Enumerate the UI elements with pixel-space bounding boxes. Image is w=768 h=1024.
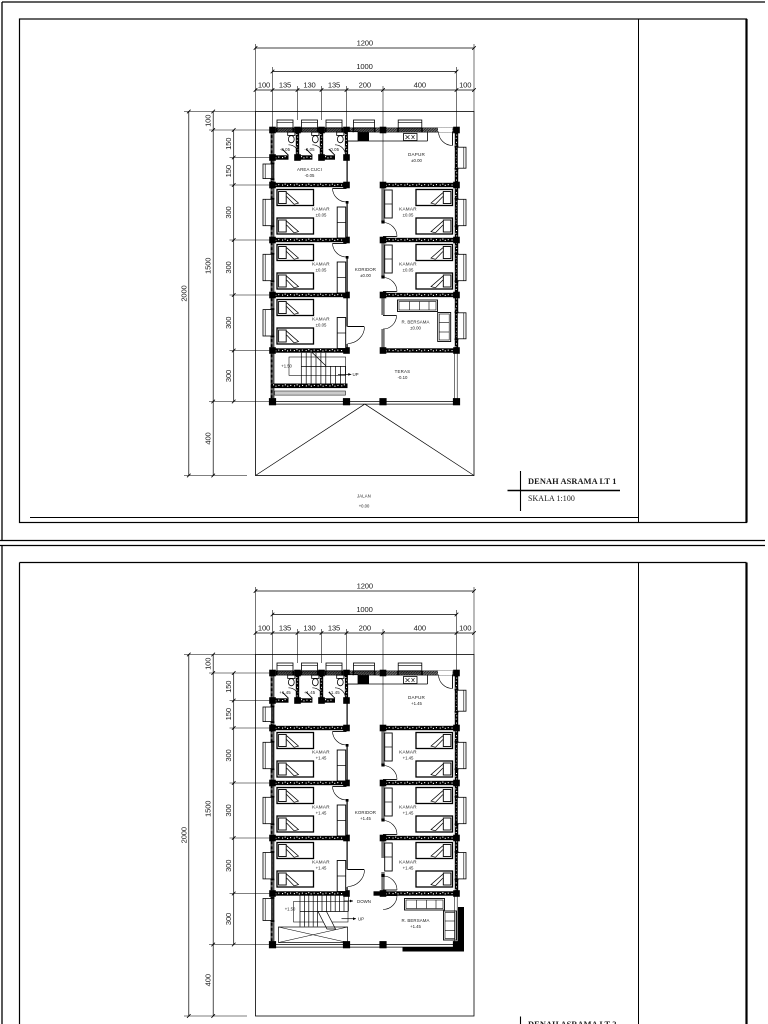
svg-text:JALAN: JALAN [357, 494, 371, 499]
svg-text:+1.45: +1.45 [316, 811, 327, 816]
svg-text:300: 300 [224, 804, 233, 816]
svg-text:±0.05: ±0.05 [316, 323, 327, 328]
svg-text:130: 130 [303, 81, 315, 90]
svg-text:1000: 1000 [356, 62, 372, 71]
svg-text:KAMAR: KAMAR [399, 805, 417, 810]
svg-text:135: 135 [328, 81, 340, 90]
svg-text:±0.00: ±0.00 [411, 158, 422, 163]
svg-text:±0.05: ±0.05 [316, 213, 327, 218]
svg-text:150: 150 [224, 681, 233, 693]
svg-text:+1.45: +1.45 [328, 690, 340, 695]
svg-text:UP: UP [358, 917, 364, 922]
svg-text:KAMAR: KAMAR [312, 207, 330, 212]
svg-text:1500: 1500 [204, 258, 213, 274]
svg-text:KAMAR: KAMAR [312, 750, 330, 755]
svg-text:300: 300 [224, 913, 233, 925]
svg-text:1200: 1200 [357, 39, 373, 48]
svg-text:+1.50: +1.50 [285, 907, 296, 912]
svg-text:+1.45: +1.45 [403, 811, 414, 816]
svg-text:300: 300 [224, 749, 233, 761]
svg-text:100: 100 [459, 81, 471, 90]
svg-text:DOWN: DOWN [357, 899, 371, 904]
svg-text:135: 135 [328, 624, 340, 633]
svg-text:100: 100 [258, 81, 270, 90]
svg-text:150: 150 [224, 138, 233, 150]
svg-text:+1.45: +1.45 [360, 816, 371, 821]
svg-text:KAMAR: KAMAR [312, 860, 330, 865]
svg-text:KAMAR: KAMAR [312, 805, 330, 810]
svg-text:400: 400 [204, 432, 213, 444]
svg-text:100: 100 [258, 624, 270, 633]
svg-text:-0.10: -0.10 [398, 375, 408, 380]
svg-text:KAMAR: KAMAR [399, 750, 417, 755]
svg-text:300: 300 [224, 317, 233, 329]
svg-text:300: 300 [224, 206, 233, 218]
svg-text:KAMAR: KAMAR [399, 207, 417, 212]
svg-text:400: 400 [414, 81, 426, 90]
svg-text:135: 135 [279, 81, 291, 90]
svg-text:2000: 2000 [179, 827, 188, 843]
svg-text:KORIDOR: KORIDOR [355, 810, 376, 815]
svg-text:300: 300 [224, 860, 233, 872]
svg-text:±0.05: ±0.05 [403, 213, 414, 218]
svg-text:+1.45: +1.45 [279, 690, 291, 695]
svg-text:KAMAR: KAMAR [312, 262, 330, 267]
svg-text:2000: 2000 [179, 285, 188, 301]
svg-text:+0.00: +0.00 [359, 504, 370, 509]
svg-text:200: 200 [359, 624, 371, 633]
svg-text:±0.00: ±0.00 [410, 326, 421, 331]
svg-text:+1.45: +1.45 [411, 701, 422, 706]
svg-text:R. BERSAMA: R. BERSAMA [401, 320, 429, 325]
svg-text:400: 400 [414, 624, 426, 633]
svg-text:±0.05: ±0.05 [403, 268, 414, 273]
svg-text:-0.05: -0.05 [280, 147, 291, 152]
svg-text:300: 300 [224, 370, 233, 382]
svg-text:+1.50: +1.50 [281, 364, 292, 369]
svg-text:R. BERSAMA: R. BERSAMA [401, 918, 429, 923]
svg-text:1200: 1200 [357, 582, 373, 591]
svg-text:SKALA 1:100: SKALA 1:100 [528, 494, 575, 503]
svg-text:1500: 1500 [204, 801, 213, 817]
svg-text:DENAH ASRAMA LT 2: DENAH ASRAMA LT 2 [528, 1020, 617, 1024]
svg-text:KAMAR: KAMAR [399, 860, 417, 865]
svg-text:1000: 1000 [356, 605, 372, 614]
svg-text:KORIDOR: KORIDOR [355, 267, 376, 272]
svg-text:100: 100 [459, 624, 471, 633]
svg-text:+1.45: +1.45 [403, 866, 414, 871]
svg-text:+1.45: +1.45 [316, 866, 327, 871]
svg-text:+1.45: +1.45 [403, 756, 414, 761]
svg-text:UP: UP [352, 372, 358, 377]
svg-text:KAMAR: KAMAR [312, 317, 330, 322]
svg-text:100: 100 [204, 658, 213, 670]
svg-text:KAMAR: KAMAR [399, 262, 417, 267]
svg-text:300: 300 [224, 261, 233, 273]
svg-text:130: 130 [303, 624, 315, 633]
svg-text:+1.45: +1.45 [410, 924, 421, 929]
svg-text:AREA CUCI: AREA CUCI [297, 167, 322, 172]
svg-text:DAPUR: DAPUR [408, 695, 426, 700]
svg-text:TERAS: TERAS [395, 369, 411, 374]
svg-text:150: 150 [224, 165, 233, 177]
svg-text:DAPUR: DAPUR [408, 152, 426, 157]
svg-text:400: 400 [204, 974, 213, 986]
svg-text:135: 135 [279, 624, 291, 633]
svg-text:-0.05: -0.05 [305, 173, 315, 178]
svg-text:150: 150 [224, 708, 233, 720]
svg-text:±0.00: ±0.00 [360, 273, 371, 278]
svg-text:200: 200 [359, 81, 371, 90]
svg-text:DENAH ASRAMA LT 1: DENAH ASRAMA LT 1 [528, 477, 617, 486]
svg-text:100: 100 [204, 115, 213, 127]
svg-text:+1.45: +1.45 [316, 756, 327, 761]
svg-text:±0.05: ±0.05 [316, 268, 327, 273]
svg-text:+1.45: +1.45 [304, 690, 316, 695]
